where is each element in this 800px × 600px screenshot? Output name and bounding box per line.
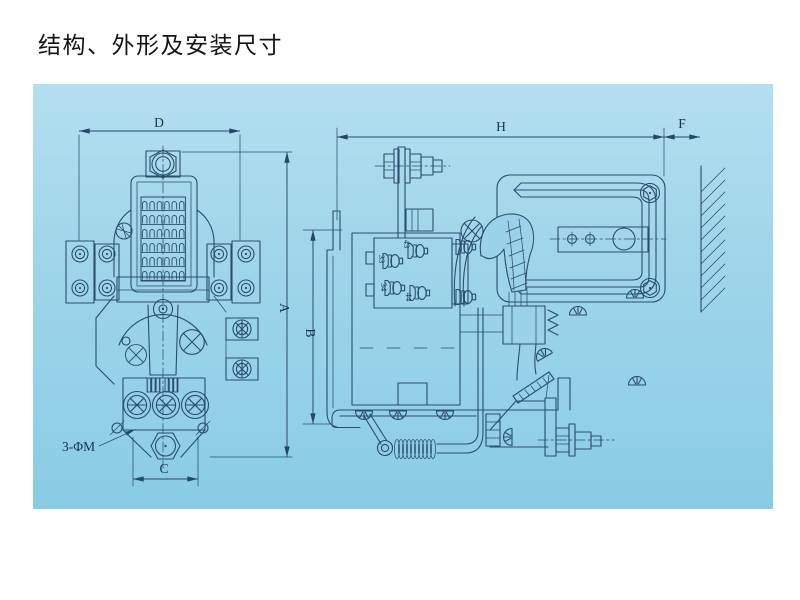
bottom-terminal-bolt [486, 398, 614, 456]
top-terminal-stud [375, 147, 450, 238]
mounting-hole-right [196, 421, 210, 435]
mounting-hole-left [110, 421, 124, 435]
dim-a: A [182, 152, 292, 457]
aux-terminal-33: 33 [377, 255, 387, 264]
front-view: D A [62, 115, 292, 486]
wall-hatching [701, 166, 725, 312]
dim-label-h: H [496, 119, 506, 134]
dim-label-d: D [154, 115, 164, 130]
left-lower-bracket [96, 296, 114, 384]
phillips-screw [461, 220, 483, 242]
magnet-frame [352, 233, 460, 405]
technical-drawing: D A [0, 0, 800, 600]
dim-c: C [133, 437, 198, 486]
aux-terminal-44: 44 [404, 293, 414, 302]
knurl-wheel [116, 223, 132, 239]
right-terminal-block [207, 241, 260, 303]
v-bracket [110, 421, 210, 459]
bottom-rail [332, 378, 570, 428]
left-terminal-block [66, 241, 119, 303]
mounting-note-label: 3-ΦM [62, 439, 95, 454]
contact-head [480, 214, 533, 306]
dim-b: B [303, 230, 342, 424]
dim-label-a: A [277, 303, 292, 313]
base-block [123, 378, 209, 430]
armature-block [460, 306, 558, 380]
vent-grille [141, 197, 185, 281]
dim-label-b: B [303, 328, 318, 337]
dim-label-c: C [159, 461, 168, 476]
aux-terminal-43: 43 [402, 240, 412, 249]
mounting-note: 3-ΦM [62, 429, 136, 454]
dim-label-f: F [678, 116, 686, 131]
dim-f: F [664, 116, 700, 137]
left-bracket [327, 211, 340, 427]
side-view: H F B [303, 116, 725, 459]
right-lower-tabs [214, 296, 258, 380]
aux-terminal-34: 34 [379, 283, 389, 292]
dim-h: H [337, 119, 664, 220]
